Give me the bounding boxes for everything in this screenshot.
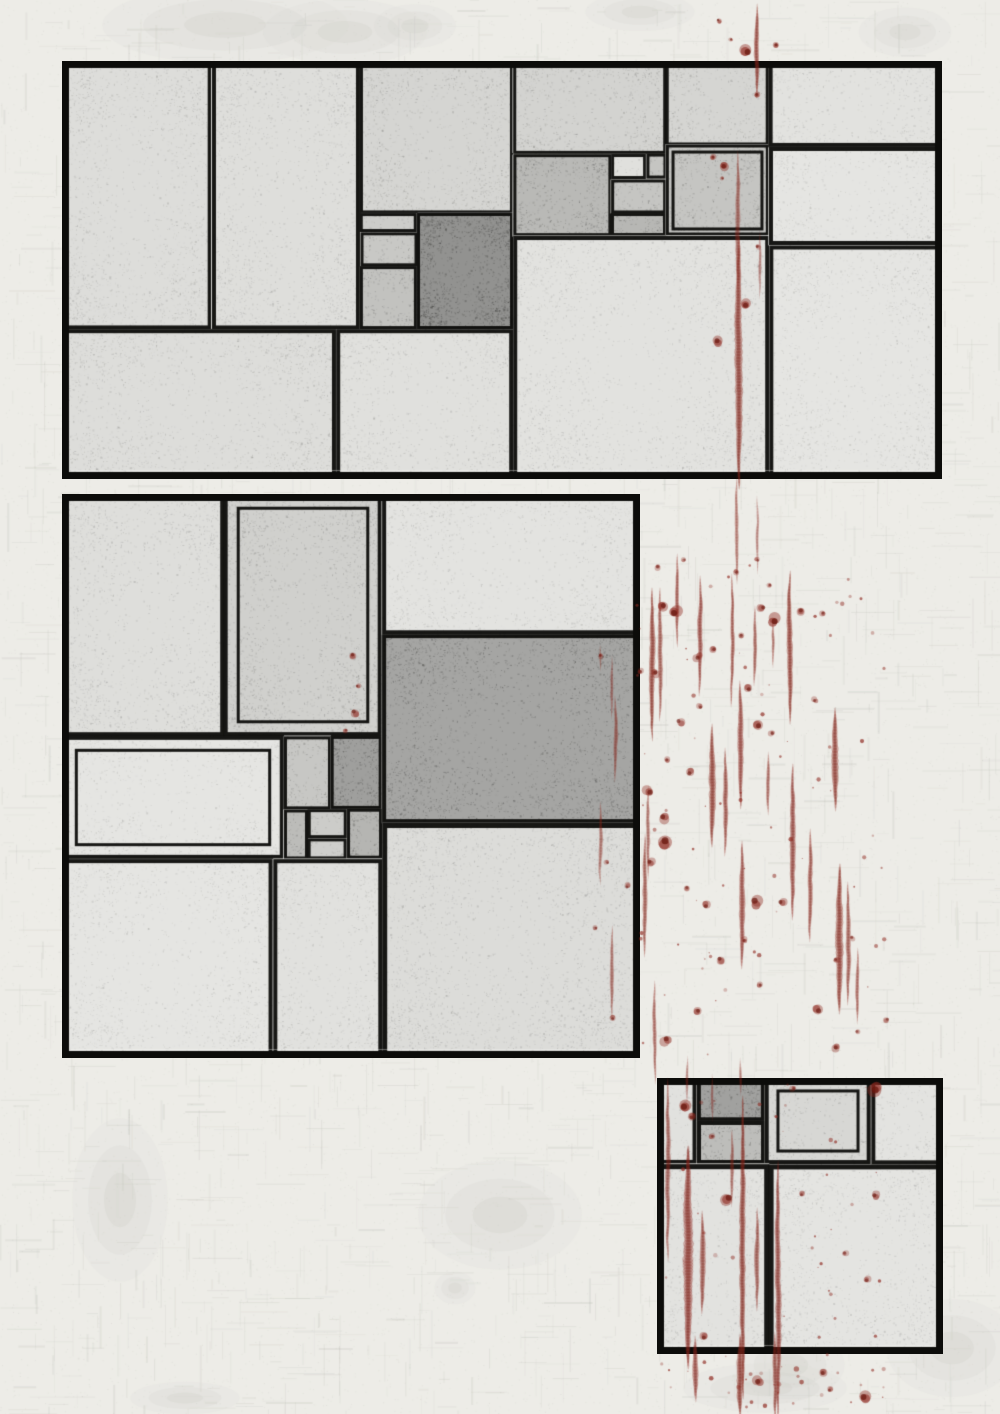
blood-splatter-canvas bbox=[0, 0, 1000, 1414]
artwork-page bbox=[0, 0, 1000, 1414]
